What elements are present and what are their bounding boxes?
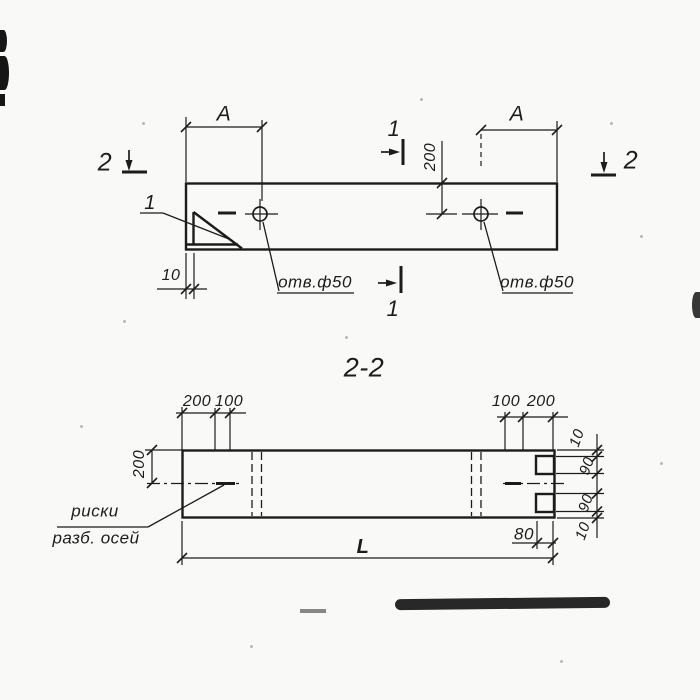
section-mark-2-right bbox=[591, 152, 616, 175]
section-title: 2-2 bbox=[344, 355, 385, 382]
scan-artifact bbox=[692, 292, 700, 318]
scan-speck bbox=[560, 660, 563, 663]
section-mark-2-left-label: 2 bbox=[98, 151, 112, 176]
plan-hole-left bbox=[218, 199, 278, 230]
drawing-sheet: A A 200 1 1 2 2 1 отв.ф50 отв.ф50 10 2-2… bbox=[0, 0, 700, 700]
section-dim-top-right-200-label: 200 bbox=[527, 394, 555, 410]
plan-dim-a-left bbox=[181, 117, 267, 201]
scan-speck bbox=[610, 122, 613, 125]
plan-corner-detail-triangle bbox=[186, 212, 242, 249]
scan-speck bbox=[420, 98, 423, 101]
section-mark-2-right-label: 2 bbox=[624, 149, 638, 174]
section-dim-top-right bbox=[497, 412, 568, 450]
arrowhead bbox=[601, 162, 608, 173]
scan-artifact bbox=[395, 597, 610, 610]
scan-speck bbox=[123, 320, 126, 323]
section-dim-length-label: L bbox=[357, 537, 370, 557]
scan-artifact bbox=[0, 56, 9, 90]
plan-body-outline bbox=[186, 184, 557, 250]
notch-bottom bbox=[536, 494, 554, 512]
scan-artifact bbox=[0, 30, 7, 52]
scan-speck bbox=[660, 462, 663, 465]
section-dim-top-left-100-label: 100 bbox=[215, 394, 243, 410]
note-riski-line1: риски bbox=[71, 503, 118, 520]
section-mark-1-bottom bbox=[378, 266, 401, 293]
section-dim-left-200-label: 200 bbox=[132, 450, 148, 478]
plan-hole-left-label: отв.ф50 bbox=[278, 274, 352, 291]
section-dim-top-left bbox=[176, 407, 246, 450]
note-riski-line2: разб. осей bbox=[52, 530, 139, 547]
notch-top bbox=[536, 456, 554, 474]
plan-hole-right bbox=[462, 199, 523, 230]
plan-detail-leader bbox=[140, 213, 229, 239]
section-mark-1-bottom-label: 1 bbox=[387, 298, 400, 320]
plan-detail-label: 1 bbox=[144, 193, 156, 213]
plan-dim-a-left-label: A bbox=[217, 104, 232, 125]
section-mark-1-top bbox=[381, 139, 403, 165]
section-dim-left-200 bbox=[145, 445, 183, 488]
scan-speck bbox=[80, 425, 83, 428]
section-dim-top-right-100-label: 100 bbox=[492, 394, 520, 410]
leader-line bbox=[163, 213, 229, 239]
section-mark-1-top-label: 1 bbox=[388, 118, 401, 140]
plan-dim-a-right-label: A bbox=[510, 104, 525, 125]
plan-dim-200-label: 200 bbox=[423, 143, 439, 171]
arrowhead bbox=[386, 280, 397, 287]
hidden-hole-edges-left bbox=[252, 452, 262, 516]
scan-speck bbox=[640, 235, 643, 238]
plan-dim-a-right bbox=[476, 121, 562, 182]
hidden-hole-edges-right bbox=[472, 452, 482, 516]
drawing-linework bbox=[0, 0, 700, 700]
scan-artifact bbox=[300, 609, 326, 613]
triangle-hypotenuse bbox=[194, 212, 243, 249]
arrowhead bbox=[126, 160, 133, 171]
scan-speck bbox=[142, 122, 145, 125]
scan-speck bbox=[345, 336, 348, 339]
scan-artifact bbox=[0, 94, 5, 106]
plan-dim-10-label: 10 bbox=[162, 268, 181, 284]
scan-speck bbox=[250, 645, 253, 648]
arrowhead bbox=[389, 149, 400, 156]
leader-line bbox=[148, 485, 224, 527]
leader-line bbox=[263, 222, 279, 291]
plan-hole-right-label: отв.ф50 bbox=[500, 274, 574, 291]
section-mark-2-left bbox=[122, 150, 147, 172]
section-dim-top-left-200-label: 200 bbox=[183, 394, 211, 410]
section-dim-80-label: 80 bbox=[514, 526, 534, 543]
